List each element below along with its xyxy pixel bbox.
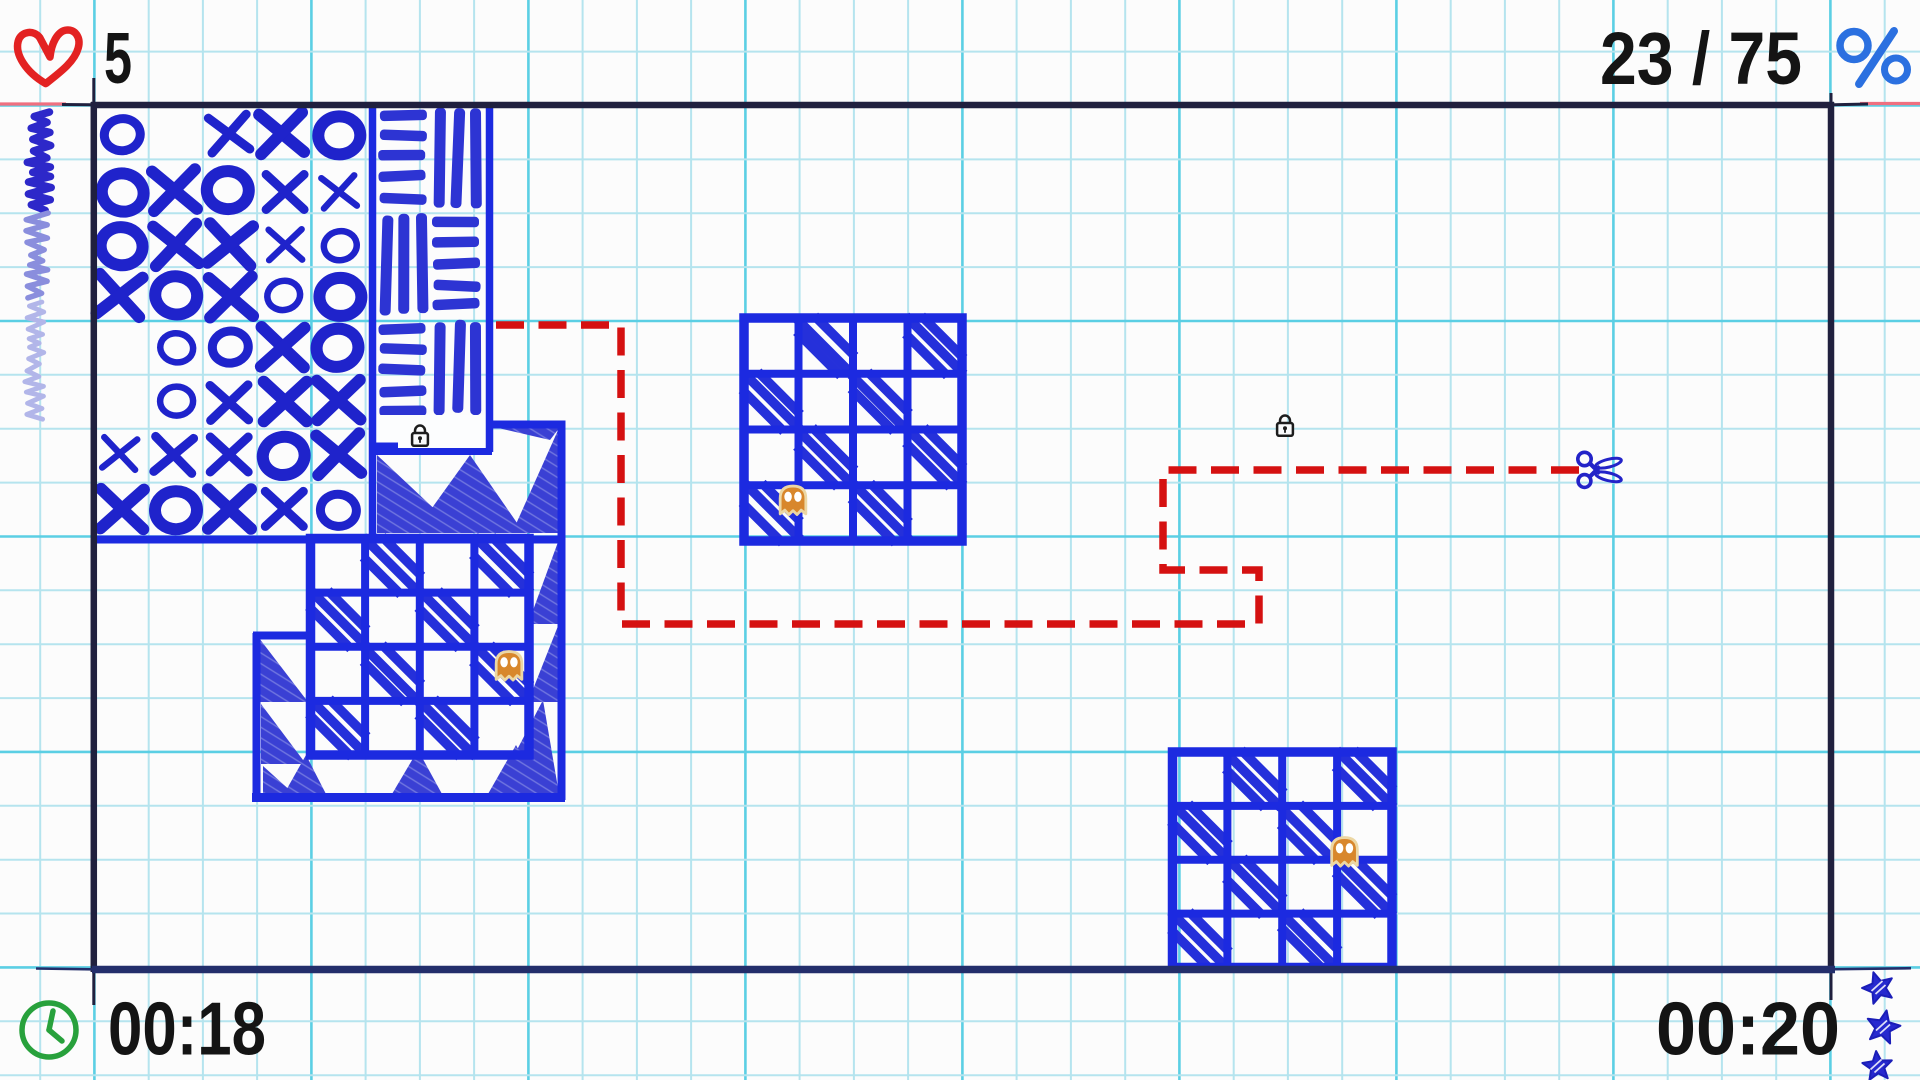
svg-text:5: 5 [104,19,132,99]
svg-text:00:18: 00:18 [108,987,266,1071]
svg-text:00:20: 00:20 [1656,987,1840,1071]
svg-text:23 / 75: 23 / 75 [1600,17,1802,100]
